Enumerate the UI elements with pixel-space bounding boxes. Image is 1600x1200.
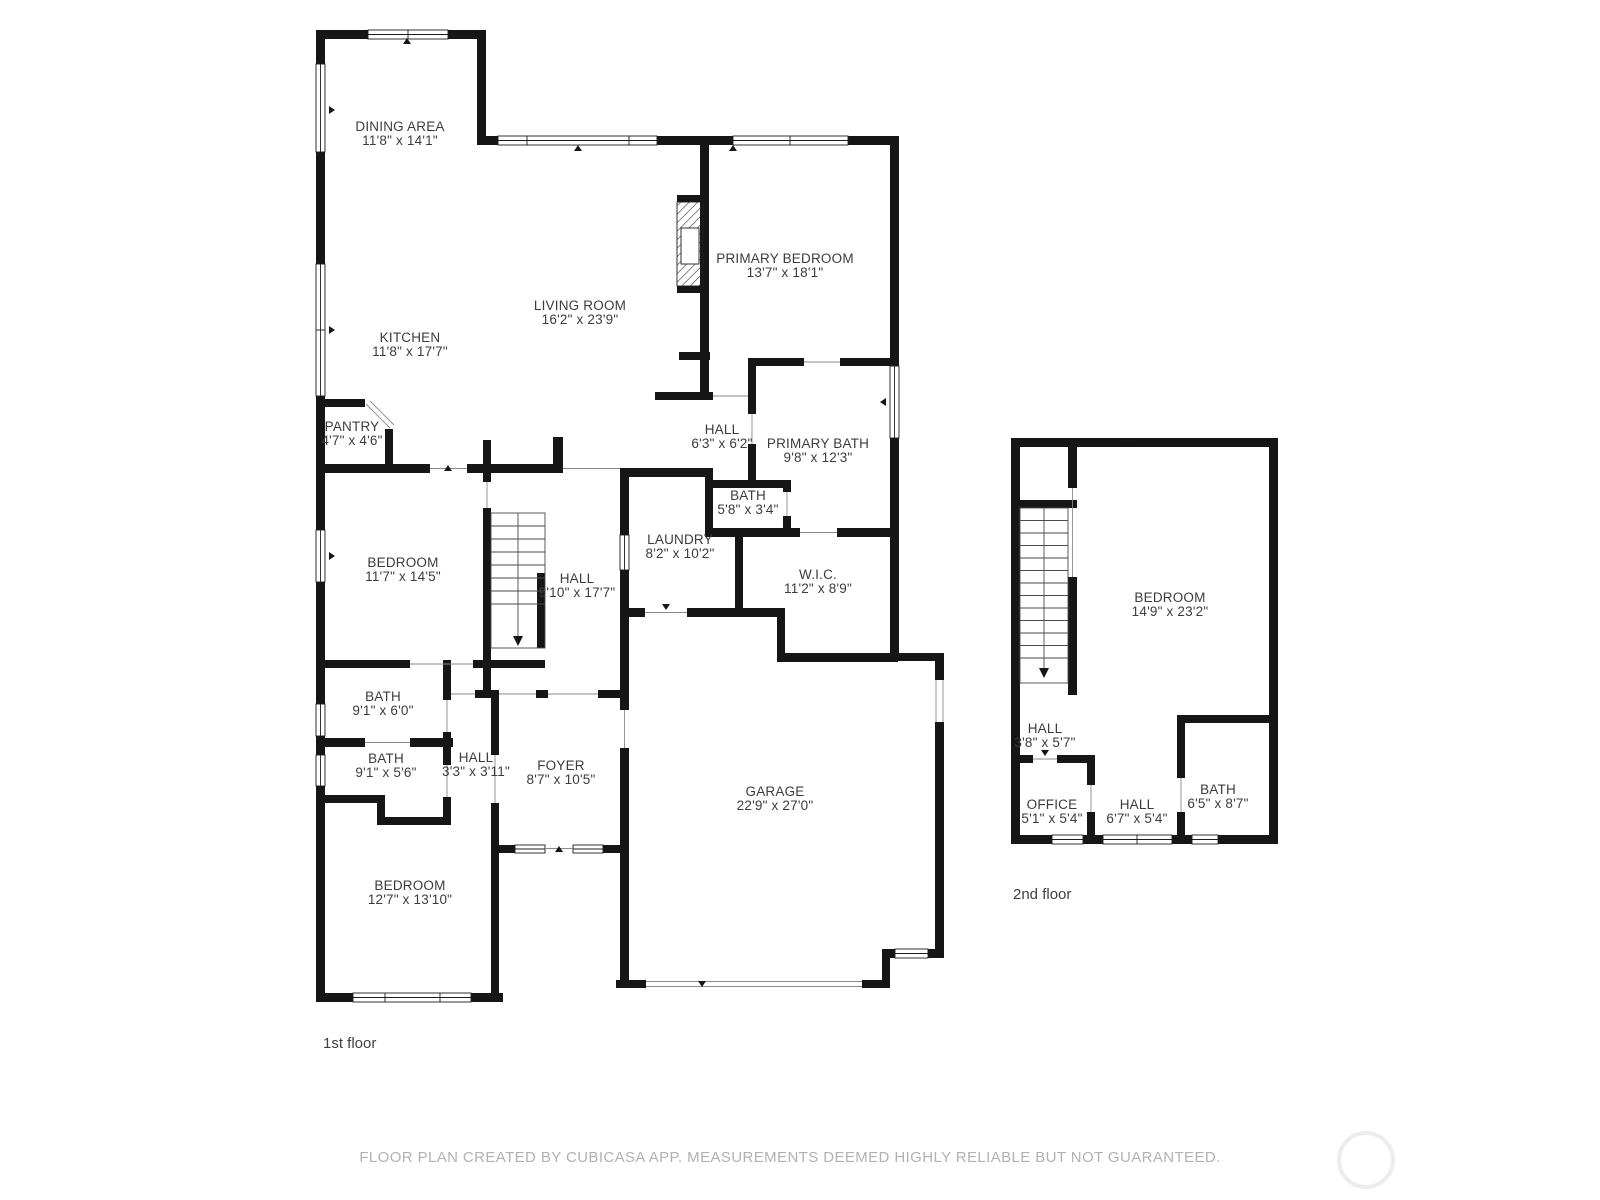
room-label-hall-1: HALL6'3" x 6'2" [691, 422, 752, 451]
room-label-bath-1: BATH9'1" x 6'0" [352, 689, 413, 718]
room-label-garage: GARAGE22'9" x 27'0" [737, 784, 814, 813]
room-label-bedroom-2: BEDROOM12'7" x 13'10" [368, 878, 452, 907]
first-floor-walls [316, 30, 944, 1002]
second-floor-caption: 2nd floor [1013, 886, 1071, 903]
svg-text:11'7" x 14'5": 11'7" x 14'5" [365, 569, 441, 584]
svg-text:12'7" x 13'10": 12'7" x 13'10" [368, 892, 452, 907]
svg-text:PRIMARY BEDROOM: PRIMARY BEDROOM [716, 251, 854, 266]
footer-disclaimer: FLOOR PLAN CREATED BY CUBICASA APP. MEAS… [359, 1149, 1220, 1166]
svg-text:13'7" x 18'1": 13'7" x 18'1" [747, 265, 824, 280]
svg-text:BATH: BATH [368, 751, 404, 766]
svg-text:BEDROOM: BEDROOM [1134, 590, 1205, 605]
svg-text:9'1" x 5'6": 9'1" x 5'6" [355, 765, 416, 780]
room-label-dining-area: DINING AREA11'8" x 14'1" [355, 119, 444, 148]
first-floor-caption: 1st floor [323, 1035, 376, 1052]
svg-text:BEDROOM: BEDROOM [367, 555, 438, 570]
svg-text:FOYER: FOYER [537, 758, 585, 773]
room-label-foyer: FOYER8'7" x 10'5" [527, 758, 596, 787]
room-label-primary-bath: PRIMARY BATH9'8" x 12'3" [767, 436, 869, 465]
svg-text:11'2" x 8'9": 11'2" x 8'9" [784, 581, 852, 596]
svg-text:BEDROOM: BEDROOM [374, 878, 445, 893]
room-label-pantry: PANTRY4'7" x 4'6" [321, 419, 382, 448]
second-floor-markers [1041, 441, 1132, 756]
room-label-bedroom-3: BEDROOM14'9" x 23'2" [1132, 590, 1209, 619]
svg-text:HALL: HALL [1120, 797, 1155, 812]
svg-text:9'10" x 17'7": 9'10" x 17'7" [539, 585, 616, 600]
room-label-living-room: LIVING ROOM16'2" x 23'9" [534, 298, 626, 327]
room-label-hall-4: HALL3'8" x 5'7" [1014, 721, 1075, 750]
room-label-bedroom-1: BEDROOM11'7" x 14'5" [365, 555, 441, 584]
svg-text:8'7" x 10'5": 8'7" x 10'5" [527, 772, 596, 787]
svg-text:6'7" x 5'4": 6'7" x 5'4" [1106, 811, 1167, 826]
fireplace [677, 202, 703, 286]
room-label-laundry: LAUNDRY8'2" x 10'2" [646, 532, 715, 561]
svg-text:4'7" x 4'6": 4'7" x 4'6" [321, 433, 382, 448]
second-floor-door-openings [1033, 488, 1181, 812]
svg-text:9'8" x 12'3": 9'8" x 12'3" [784, 450, 853, 465]
svg-text:9'1" x 6'0": 9'1" x 6'0" [352, 703, 413, 718]
svg-text:14'9" x 23'2": 14'9" x 23'2" [1132, 604, 1209, 619]
svg-text:11'8" x 17'7": 11'8" x 17'7" [372, 344, 448, 359]
svg-text:LIVING ROOM: LIVING ROOM [534, 298, 626, 313]
svg-text:5'8" x 3'4": 5'8" x 3'4" [717, 502, 778, 517]
svg-text:HALL: HALL [560, 571, 595, 586]
svg-text:8'2" x 10'2": 8'2" x 10'2" [646, 546, 715, 561]
svg-text:PANTRY: PANTRY [325, 419, 380, 434]
svg-text:W.I.C.: W.I.C. [799, 567, 837, 582]
svg-text:11'8" x 14'1": 11'8" x 14'1" [362, 133, 438, 148]
room-label-hall-3: HALL3'3" x 3'11" [442, 750, 510, 779]
svg-text:LAUNDRY: LAUNDRY [647, 532, 713, 547]
room-label-kitchen: KITCHEN11'8" x 17'7" [372, 330, 448, 359]
svg-text:BATH: BATH [1200, 782, 1236, 797]
first-floor-markers [329, 38, 886, 987]
room-label-bath-small: BATH5'8" x 3'4" [717, 488, 778, 517]
second-floor-windows [1052, 835, 1218, 844]
svg-text:GARAGE: GARAGE [746, 784, 805, 799]
svg-text:6'3" x 6'2": 6'3" x 6'2" [691, 436, 752, 451]
room-label-hall-2: HALL9'10" x 17'7" [539, 571, 616, 600]
svg-text:16'2" x 23'9": 16'2" x 23'9" [542, 312, 619, 327]
svg-text:3'3" x 3'11": 3'3" x 3'11" [442, 764, 510, 779]
room-label-primary-bedroom: PRIMARY BEDROOM13'7" x 18'1" [716, 251, 854, 280]
second-floor-walls [1011, 438, 1278, 844]
svg-text:3'8" x 5'7": 3'8" x 5'7" [1014, 735, 1075, 750]
svg-text:PRIMARY BATH: PRIMARY BATH [767, 436, 869, 451]
second-floor-stairs [1020, 508, 1068, 683]
svg-text:HALL: HALL [459, 750, 494, 765]
svg-text:HALL: HALL [1028, 721, 1063, 736]
svg-text:5'1" x 5'4": 5'1" x 5'4" [1021, 811, 1082, 826]
watermark-circle-icon [1339, 1133, 1393, 1187]
first-floor-stairs [491, 513, 545, 648]
svg-text:BATH: BATH [730, 488, 766, 503]
svg-text:OFFICE: OFFICE [1027, 797, 1078, 812]
svg-text:KITCHEN: KITCHEN [380, 330, 441, 345]
room-label-hall-5: HALL6'7" x 5'4" [1106, 797, 1167, 826]
svg-text:BATH: BATH [365, 689, 401, 704]
floor-plan-page: DINING AREA11'8" x 14'1" PRIMARY BEDROOM… [0, 0, 1600, 1200]
room-label-wic: W.I.C.11'2" x 8'9" [784, 567, 852, 596]
second-floor-room-labels: BEDROOM14'9" x 23'2" HALL3'8" x 5'7" OFF… [1014, 590, 1248, 826]
room-label-bath-2: BATH9'1" x 5'6" [355, 751, 416, 780]
svg-text:DINING AREA: DINING AREA [355, 119, 444, 134]
room-label-office: OFFICE5'1" x 5'4" [1021, 797, 1082, 826]
svg-text:22'9" x 27'0": 22'9" x 27'0" [737, 798, 814, 813]
room-label-bath-3: BATH6'5" x 8'7" [1187, 782, 1248, 811]
floor-plan-drawing: DINING AREA11'8" x 14'1" PRIMARY BEDROOM… [0, 0, 1600, 1200]
svg-text:HALL: HALL [705, 422, 740, 437]
svg-text:6'5" x 8'7": 6'5" x 8'7" [1187, 796, 1248, 811]
